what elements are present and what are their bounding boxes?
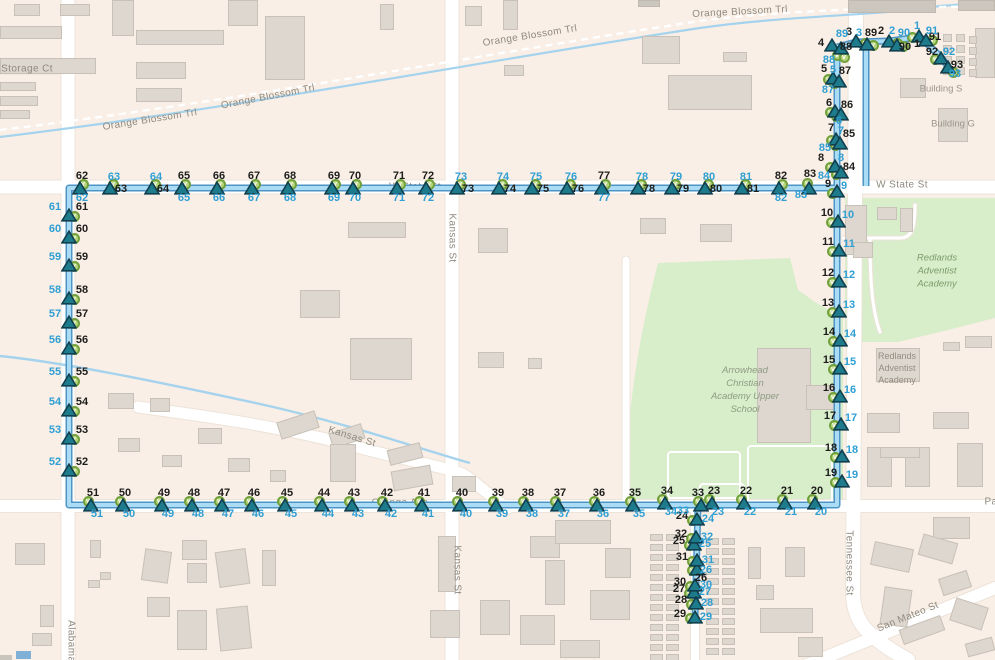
waypoint-number-black: 6 xyxy=(826,97,832,109)
waypoint-marker-60[interactable] xyxy=(61,230,77,249)
waypoint-number-black: 50 xyxy=(119,487,131,499)
waypoint-marker-54[interactable] xyxy=(61,403,77,422)
waypoint-number-blue: 83 xyxy=(795,189,807,201)
waypoint-number-black: 31 xyxy=(676,551,688,563)
waypoint-number-black: 71 xyxy=(393,170,405,182)
waypoint-number-blue: 24 xyxy=(702,513,714,525)
waypoint-number-blue: 14 xyxy=(844,328,856,340)
waypoint-number-blue: 52 xyxy=(49,456,61,468)
waypoint-number-blue: 45 xyxy=(285,508,297,520)
waypoint-number-black: 21 xyxy=(781,485,793,497)
waypoint-number-blue: 12 xyxy=(843,269,855,281)
waypoint-number-black: 70 xyxy=(349,170,361,182)
waypoint-number-blue: 75 xyxy=(530,171,542,183)
waypoint-number-blue: 15 xyxy=(844,356,856,368)
waypoint-number-black: 66 xyxy=(213,170,225,182)
waypoint-number-black: 60 xyxy=(76,223,88,235)
waypoint-number-black: 11 xyxy=(822,236,834,248)
waypoint-number-black: 48 xyxy=(188,487,200,499)
waypoint-number-blue: 37 xyxy=(558,508,570,520)
waypoint-number-blue: 91 xyxy=(926,25,938,37)
waypoint-number-black: 54 xyxy=(76,396,88,408)
waypoint-number-black: 92 xyxy=(926,46,938,58)
waypoint-number-black: 35 xyxy=(629,487,641,499)
waypoint-number-blue: 82 xyxy=(775,192,787,204)
waypoint-number-black: 55 xyxy=(76,366,88,378)
waypoint-number-blue: 9 xyxy=(841,180,847,192)
waypoint-marker-59[interactable] xyxy=(61,258,77,277)
ui-fragment xyxy=(16,651,31,659)
waypoint-number-blue: 79 xyxy=(670,171,682,183)
waypoint-number-black: 64 xyxy=(157,183,169,195)
waypoint-number-blue: 53 xyxy=(49,424,61,436)
waypoint-number-black: 51 xyxy=(87,487,99,499)
waypoint-number-blue: 74 xyxy=(497,171,509,183)
waypoint-number-black: 84 xyxy=(843,161,855,173)
waypoint-number-black: 85 xyxy=(843,128,855,140)
waypoint-number-black: 4 xyxy=(818,37,824,49)
waypoint-number-black: 72 xyxy=(422,170,434,182)
waypoint-number-black: 69 xyxy=(328,170,340,182)
waypoint-number-black: 19 xyxy=(825,467,837,479)
waypoint-number-black: 17 xyxy=(824,410,836,422)
waypoint-number-blue: 30 xyxy=(700,579,712,591)
waypoint-number-black: 43 xyxy=(348,487,360,499)
waypoint-number-black: 90 xyxy=(899,41,911,53)
waypoint-number-blue: 18 xyxy=(846,444,858,456)
waypoint-number-blue: 61 xyxy=(49,201,61,213)
waypoint-number-black: 47 xyxy=(218,487,230,499)
waypoint-number-blue: 81 xyxy=(740,171,752,183)
waypoint-number-blue: 34 xyxy=(665,506,677,518)
waypoint-number-black: 62 xyxy=(76,170,88,182)
waypoint-number-blue: 28 xyxy=(701,597,713,609)
waypoint-number-blue: 43 xyxy=(352,508,364,520)
waypoint-number-blue: 66 xyxy=(213,192,225,204)
waypoint-number-black: 49 xyxy=(158,487,170,499)
waypoint-number-black: 86 xyxy=(841,99,853,111)
waypoint-number-blue: 89 xyxy=(836,28,848,40)
waypoint-number-blue: 62 xyxy=(76,192,88,204)
waypoint-marker-89[interactable] xyxy=(859,37,875,56)
waypoint-number-black: 68 xyxy=(284,170,296,182)
waypoint-number-blue: 60 xyxy=(49,223,61,235)
waypoint-number-blue: 19 xyxy=(846,469,858,481)
waypoint-number-black: 63 xyxy=(115,183,127,195)
waypoint-number-blue: 76 xyxy=(565,171,577,183)
waypoint-number-blue: 44 xyxy=(322,508,334,520)
waypoint-markers-layer: v11v22v33v4v55v66v77v88v99v1010v1111v121… xyxy=(0,0,995,660)
waypoint-number-blue: 77 xyxy=(598,192,610,204)
waypoint-number-blue: 2 xyxy=(889,25,895,37)
waypoint-marker-53[interactable] xyxy=(61,431,77,450)
waypoint-number-blue: 40 xyxy=(460,508,472,520)
waypoint-number-blue: 20 xyxy=(815,506,827,518)
waypoint-marker-57[interactable] xyxy=(61,315,77,334)
waypoint-number-black: 22 xyxy=(740,485,752,497)
waypoint-number-blue: 22 xyxy=(744,506,756,518)
waypoint-number-blue: 21 xyxy=(785,506,797,518)
waypoint-number-blue: 11 xyxy=(843,238,855,250)
waypoint-number-blue: 13 xyxy=(843,299,855,311)
waypoint-number-black: 40 xyxy=(456,487,468,499)
waypoint-number-black: 41 xyxy=(418,487,430,499)
waypoint-number-blue: 3 xyxy=(856,27,862,39)
waypoint-number-blue: 31 xyxy=(702,554,714,566)
waypoint-number-blue: 29 xyxy=(700,611,712,623)
waypoint-number-black: 29 xyxy=(674,608,686,620)
waypoint-marker-56[interactable] xyxy=(61,341,77,360)
waypoint-number-blue: 59 xyxy=(49,251,61,263)
waypoint-number-blue: 80 xyxy=(703,171,715,183)
waypoint-number-blue: 56 xyxy=(49,334,61,346)
waypoint-number-blue: 42 xyxy=(385,508,397,520)
waypoint-number-blue: 64 xyxy=(150,171,162,183)
waypoint-number-blue: 16 xyxy=(844,384,856,396)
waypoint-number-blue: 51 xyxy=(91,508,103,520)
waypoint-number-blue: 84 xyxy=(818,170,830,182)
waypoint-number-black: 12 xyxy=(822,267,834,279)
waypoint-number-black: 2 xyxy=(878,25,884,37)
waypoint-number-black: 38 xyxy=(522,487,534,499)
waypoint-number-black: 53 xyxy=(76,424,88,436)
waypoint-number-blue: 88 xyxy=(823,54,835,66)
waypoint-number-blue: 70 xyxy=(349,192,361,204)
waypoint-number-black: 59 xyxy=(76,251,88,263)
waypoint-number-black: 79 xyxy=(677,183,689,195)
waypoint-number-blue: 48 xyxy=(192,508,204,520)
waypoint-number-blue: 39 xyxy=(496,508,508,520)
waypoint-number-black: 32 xyxy=(675,528,687,540)
waypoint-number-blue: 35 xyxy=(633,508,645,520)
waypoint-marker-52[interactable] xyxy=(61,463,77,482)
waypoint-number-blue: 69 xyxy=(328,192,340,204)
waypoint-number-black: 39 xyxy=(492,487,504,499)
waypoint-number-blue: 32 xyxy=(701,531,713,543)
waypoint-number-blue: 49 xyxy=(162,508,174,520)
waypoint-number-black: 37 xyxy=(554,487,566,499)
waypoint-number-blue: 65 xyxy=(178,192,190,204)
waypoint-number-black: 67 xyxy=(248,170,260,182)
map-canvas[interactable]: Orange Blossom TrlOrange Blossom TrlOran… xyxy=(0,0,995,660)
waypoint-number-black: 42 xyxy=(381,487,393,499)
waypoint-number-black: 10 xyxy=(821,207,833,219)
waypoint-number-black: 65 xyxy=(178,170,190,182)
waypoint-number-black: 58 xyxy=(76,284,88,296)
waypoint-number-black: 80 xyxy=(710,183,722,195)
waypoint-number-black: 73 xyxy=(462,183,474,195)
waypoint-number-blue: 41 xyxy=(422,508,434,520)
waypoint-number-black: 74 xyxy=(504,183,516,195)
waypoint-number-black: 20 xyxy=(811,485,823,497)
waypoint-number-blue: 57 xyxy=(49,308,61,320)
waypoint-number-black: 83 xyxy=(804,168,816,180)
waypoint-number-black: 56 xyxy=(76,334,88,346)
waypoint-number-black: 36 xyxy=(593,487,605,499)
waypoint-number-blue: 33 xyxy=(677,505,689,517)
waypoint-number-blue: 87 xyxy=(822,84,834,96)
waypoint-number-black: 30 xyxy=(674,576,686,588)
waypoint-number-blue: 71 xyxy=(393,192,405,204)
waypoint-number-black: 28 xyxy=(675,594,687,606)
waypoint-number-black: 13 xyxy=(822,297,834,309)
waypoint-number-black: 34 xyxy=(661,485,673,497)
waypoint-number-black: 16 xyxy=(823,382,835,394)
waypoint-number-black: 76 xyxy=(572,183,584,195)
waypoint-number-black: 88 xyxy=(840,41,852,53)
waypoint-number-black: 18 xyxy=(825,442,837,454)
waypoint-number-black: 23 xyxy=(708,485,720,497)
waypoint-number-black: 87 xyxy=(839,65,851,77)
waypoint-number-blue: 85 xyxy=(819,142,831,154)
waypoint-number-blue: 67 xyxy=(248,192,260,204)
waypoint-number-black: 14 xyxy=(823,326,835,338)
waypoint-number-blue: 55 xyxy=(49,366,61,378)
waypoint-number-black: 46 xyxy=(248,487,260,499)
waypoint-number-black: 7 xyxy=(828,122,834,134)
waypoint-number-black: 33 xyxy=(692,487,704,499)
waypoint-number-black: 15 xyxy=(823,354,835,366)
waypoint-marker-61[interactable] xyxy=(61,208,77,227)
waypoint-number-blue: 47 xyxy=(222,508,234,520)
ui-fragment xyxy=(0,655,12,660)
waypoint-marker-58[interactable] xyxy=(61,291,77,310)
waypoint-marker-55[interactable] xyxy=(61,373,77,392)
waypoint-number-blue: 46 xyxy=(252,508,264,520)
waypoint-number-blue: 90 xyxy=(898,27,910,39)
waypoint-number-blue: 78 xyxy=(636,171,648,183)
waypoint-number-black: 44 xyxy=(318,487,330,499)
waypoint-number-blue: 38 xyxy=(526,508,538,520)
waypoint-number-blue: 1 xyxy=(914,20,920,32)
waypoint-number-blue: 36 xyxy=(597,508,609,520)
waypoint-number-black: 89 xyxy=(865,27,877,39)
waypoint-number-blue: 54 xyxy=(49,396,61,408)
waypoint-number-blue: 10 xyxy=(842,209,854,221)
waypoint-number-blue: 50 xyxy=(123,508,135,520)
waypoint-number-blue: 68 xyxy=(284,192,296,204)
waypoint-number-black: 82 xyxy=(775,170,787,182)
waypoint-number-blue: 58 xyxy=(49,284,61,296)
waypoint-number-black: 78 xyxy=(643,183,655,195)
waypoint-number-blue: 73 xyxy=(455,171,467,183)
waypoint-number-black: 45 xyxy=(281,487,293,499)
waypoint-number-black: 77 xyxy=(598,170,610,182)
waypoint-number-black: 75 xyxy=(537,183,549,195)
waypoint-number-blue: 17 xyxy=(845,412,857,424)
waypoint-number-black: 57 xyxy=(76,308,88,320)
waypoint-number-blue: 93 xyxy=(949,68,961,80)
waypoint-number-black: 52 xyxy=(76,456,88,468)
waypoint-number-black: 1 xyxy=(914,38,920,50)
waypoint-number-black: 81 xyxy=(747,183,759,195)
waypoint-number-blue: 72 xyxy=(422,192,434,204)
waypoint-number-blue: 63 xyxy=(108,171,120,183)
waypoint-number-blue: 92 xyxy=(943,46,955,58)
